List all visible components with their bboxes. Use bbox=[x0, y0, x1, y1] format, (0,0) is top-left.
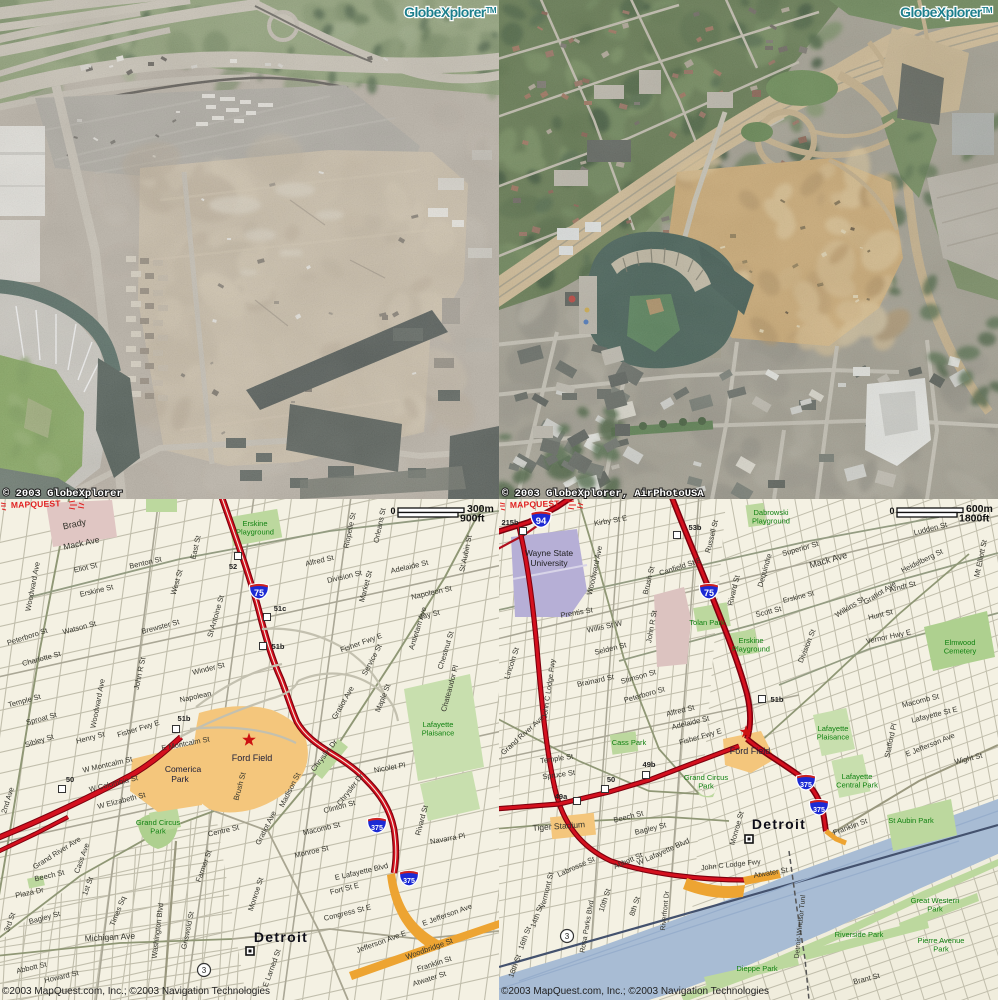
svg-text:©2003 MapQuest.com, Inc.; ©200: ©2003 MapQuest.com, Inc.; ©2003 Navigati… bbox=[2, 986, 270, 997]
svg-text:52: 52 bbox=[229, 562, 237, 571]
svg-text:51b: 51b bbox=[771, 695, 784, 704]
svg-text:Wayne State: Wayne State bbox=[525, 548, 574, 558]
svg-text:51b: 51b bbox=[272, 642, 285, 651]
svg-text:375: 375 bbox=[403, 878, 415, 885]
svg-text:50: 50 bbox=[66, 775, 74, 784]
svg-text:Plaisance: Plaisance bbox=[817, 733, 850, 742]
svg-text:Tolan Park: Tolan Park bbox=[689, 618, 725, 627]
svg-text:0: 0 bbox=[889, 506, 894, 516]
svg-text:375: 375 bbox=[800, 782, 812, 789]
svg-text:Riverside Park: Riverside Park bbox=[835, 930, 884, 939]
svg-text:49a: 49a bbox=[555, 792, 568, 801]
svg-text:©2003 MapQuest.com, Inc.; ©200: ©2003 MapQuest.com, Inc.; ©2003 Navigati… bbox=[501, 986, 769, 997]
svg-text:Dieppe Park: Dieppe Park bbox=[736, 964, 778, 973]
svg-text:GlobeXplorerTM: GlobeXplorerTM bbox=[900, 4, 993, 20]
svg-text:94: 94 bbox=[536, 516, 547, 527]
svg-text:51c: 51c bbox=[274, 604, 287, 613]
svg-text:3: 3 bbox=[565, 932, 570, 941]
svg-text:Detroit: Detroit bbox=[752, 816, 806, 832]
svg-text:Comerica: Comerica bbox=[165, 764, 202, 774]
svg-text:Plaisance: Plaisance bbox=[422, 729, 455, 738]
svg-text:Park: Park bbox=[927, 905, 943, 914]
svg-text:0: 0 bbox=[390, 506, 395, 516]
svg-text:Park: Park bbox=[698, 782, 714, 791]
svg-text:© 2003 GlobeXplorer: © 2003 GlobeXplorer bbox=[3, 488, 123, 499]
svg-text:MAPQUEST: MAPQUEST bbox=[11, 499, 62, 510]
svg-text:49b: 49b bbox=[643, 760, 656, 769]
svg-text:St Aubin Park: St Aubin Park bbox=[888, 816, 934, 825]
svg-text:Cemetery: Cemetery bbox=[944, 647, 977, 656]
svg-text:MAPQUEST: MAPQUEST bbox=[510, 499, 561, 510]
svg-text:University: University bbox=[530, 558, 568, 568]
svg-text:75: 75 bbox=[704, 588, 714, 598]
svg-text:375: 375 bbox=[813, 807, 825, 814]
svg-text:Park: Park bbox=[171, 774, 189, 784]
svg-text:75: 75 bbox=[254, 588, 264, 598]
svg-text:53b: 53b bbox=[689, 523, 702, 532]
svg-text:GlobeXplorerTM: GlobeXplorerTM bbox=[404, 4, 497, 20]
svg-text:Playground: Playground bbox=[732, 645, 770, 654]
svg-text:Cass Park: Cass Park bbox=[612, 738, 647, 747]
svg-text:© 2003 GlobeXplorer, AirPhotoU: © 2003 GlobeXplorer, AirPhotoUSA bbox=[502, 488, 704, 499]
svg-text:215b: 215b bbox=[501, 518, 519, 527]
svg-text:Ford Field: Ford Field bbox=[232, 753, 273, 763]
svg-text:375: 375 bbox=[371, 825, 383, 832]
svg-text:Playground: Playground bbox=[236, 528, 274, 537]
svg-text:900ft: 900ft bbox=[460, 513, 485, 525]
svg-text:Playground: Playground bbox=[752, 517, 790, 526]
svg-text:51b: 51b bbox=[178, 714, 191, 723]
svg-text:Park: Park bbox=[933, 945, 949, 954]
svg-text:Central Park: Central Park bbox=[836, 781, 878, 790]
svg-text:50: 50 bbox=[607, 775, 615, 784]
svg-text:1800ft: 1800ft bbox=[959, 513, 990, 525]
svg-text:Detroit: Detroit bbox=[254, 929, 308, 945]
svg-text:3: 3 bbox=[202, 966, 207, 975]
svg-text:Ford Field: Ford Field bbox=[730, 746, 771, 756]
svg-text:Park: Park bbox=[150, 827, 166, 836]
